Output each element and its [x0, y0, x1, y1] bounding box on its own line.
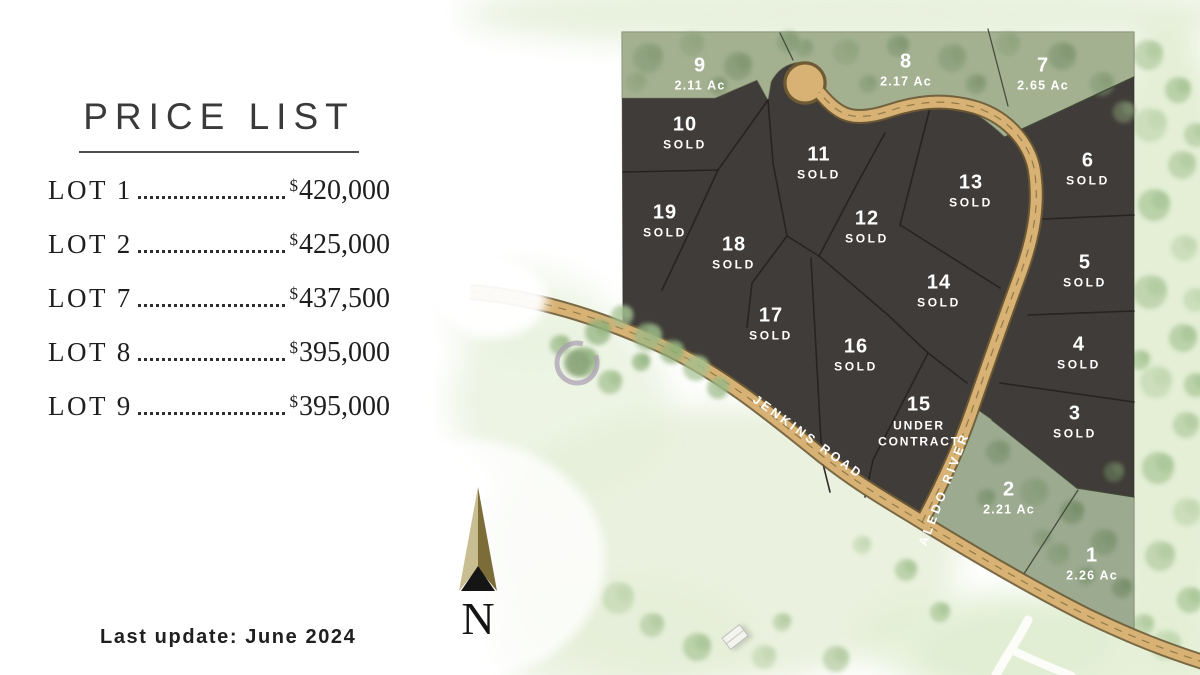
price-list-title: PRICE LIST [79, 96, 359, 153]
dot-leader [138, 400, 285, 415]
price-row: LOT 1$420,000 [48, 175, 390, 207]
price-row: LOT 9$395,000 [48, 391, 390, 423]
price-rows: LOT 1$420,000LOT 2$425,000LOT 7$437,500L… [48, 175, 390, 423]
price-lot-name: LOT 7 [48, 283, 133, 314]
last-update-note: Last update: June 2024 [100, 626, 356, 649]
price-value: $420,000 [290, 175, 391, 207]
price-value: $395,000 [290, 337, 391, 369]
price-lot-name: LOT 1 [48, 175, 133, 206]
price-value: $395,000 [290, 391, 391, 423]
flyer-canvas: 92.11 Ac82.17 Ac72.65 Ac10SOLD11SOLD13SO… [0, 0, 1200, 675]
price-value: $437,500 [290, 283, 391, 315]
price-lot-name: LOT 9 [48, 391, 133, 422]
price-list-panel: PRICE LIST LOT 1$420,000LOT 2$425,000LOT… [48, 96, 390, 423]
culdesac [787, 65, 824, 102]
price-lot-name: LOT 2 [48, 229, 133, 260]
price-row: LOT 8$395,000 [48, 337, 390, 369]
dot-leader [138, 292, 285, 307]
price-row: LOT 7$437,500 [48, 283, 390, 315]
dot-leader [138, 238, 285, 253]
price-row: LOT 2$425,000 [48, 229, 390, 261]
dot-leader [138, 346, 285, 361]
price-value: $425,000 [290, 229, 391, 261]
price-lot-name: LOT 8 [48, 337, 133, 368]
dot-leader [138, 184, 285, 199]
